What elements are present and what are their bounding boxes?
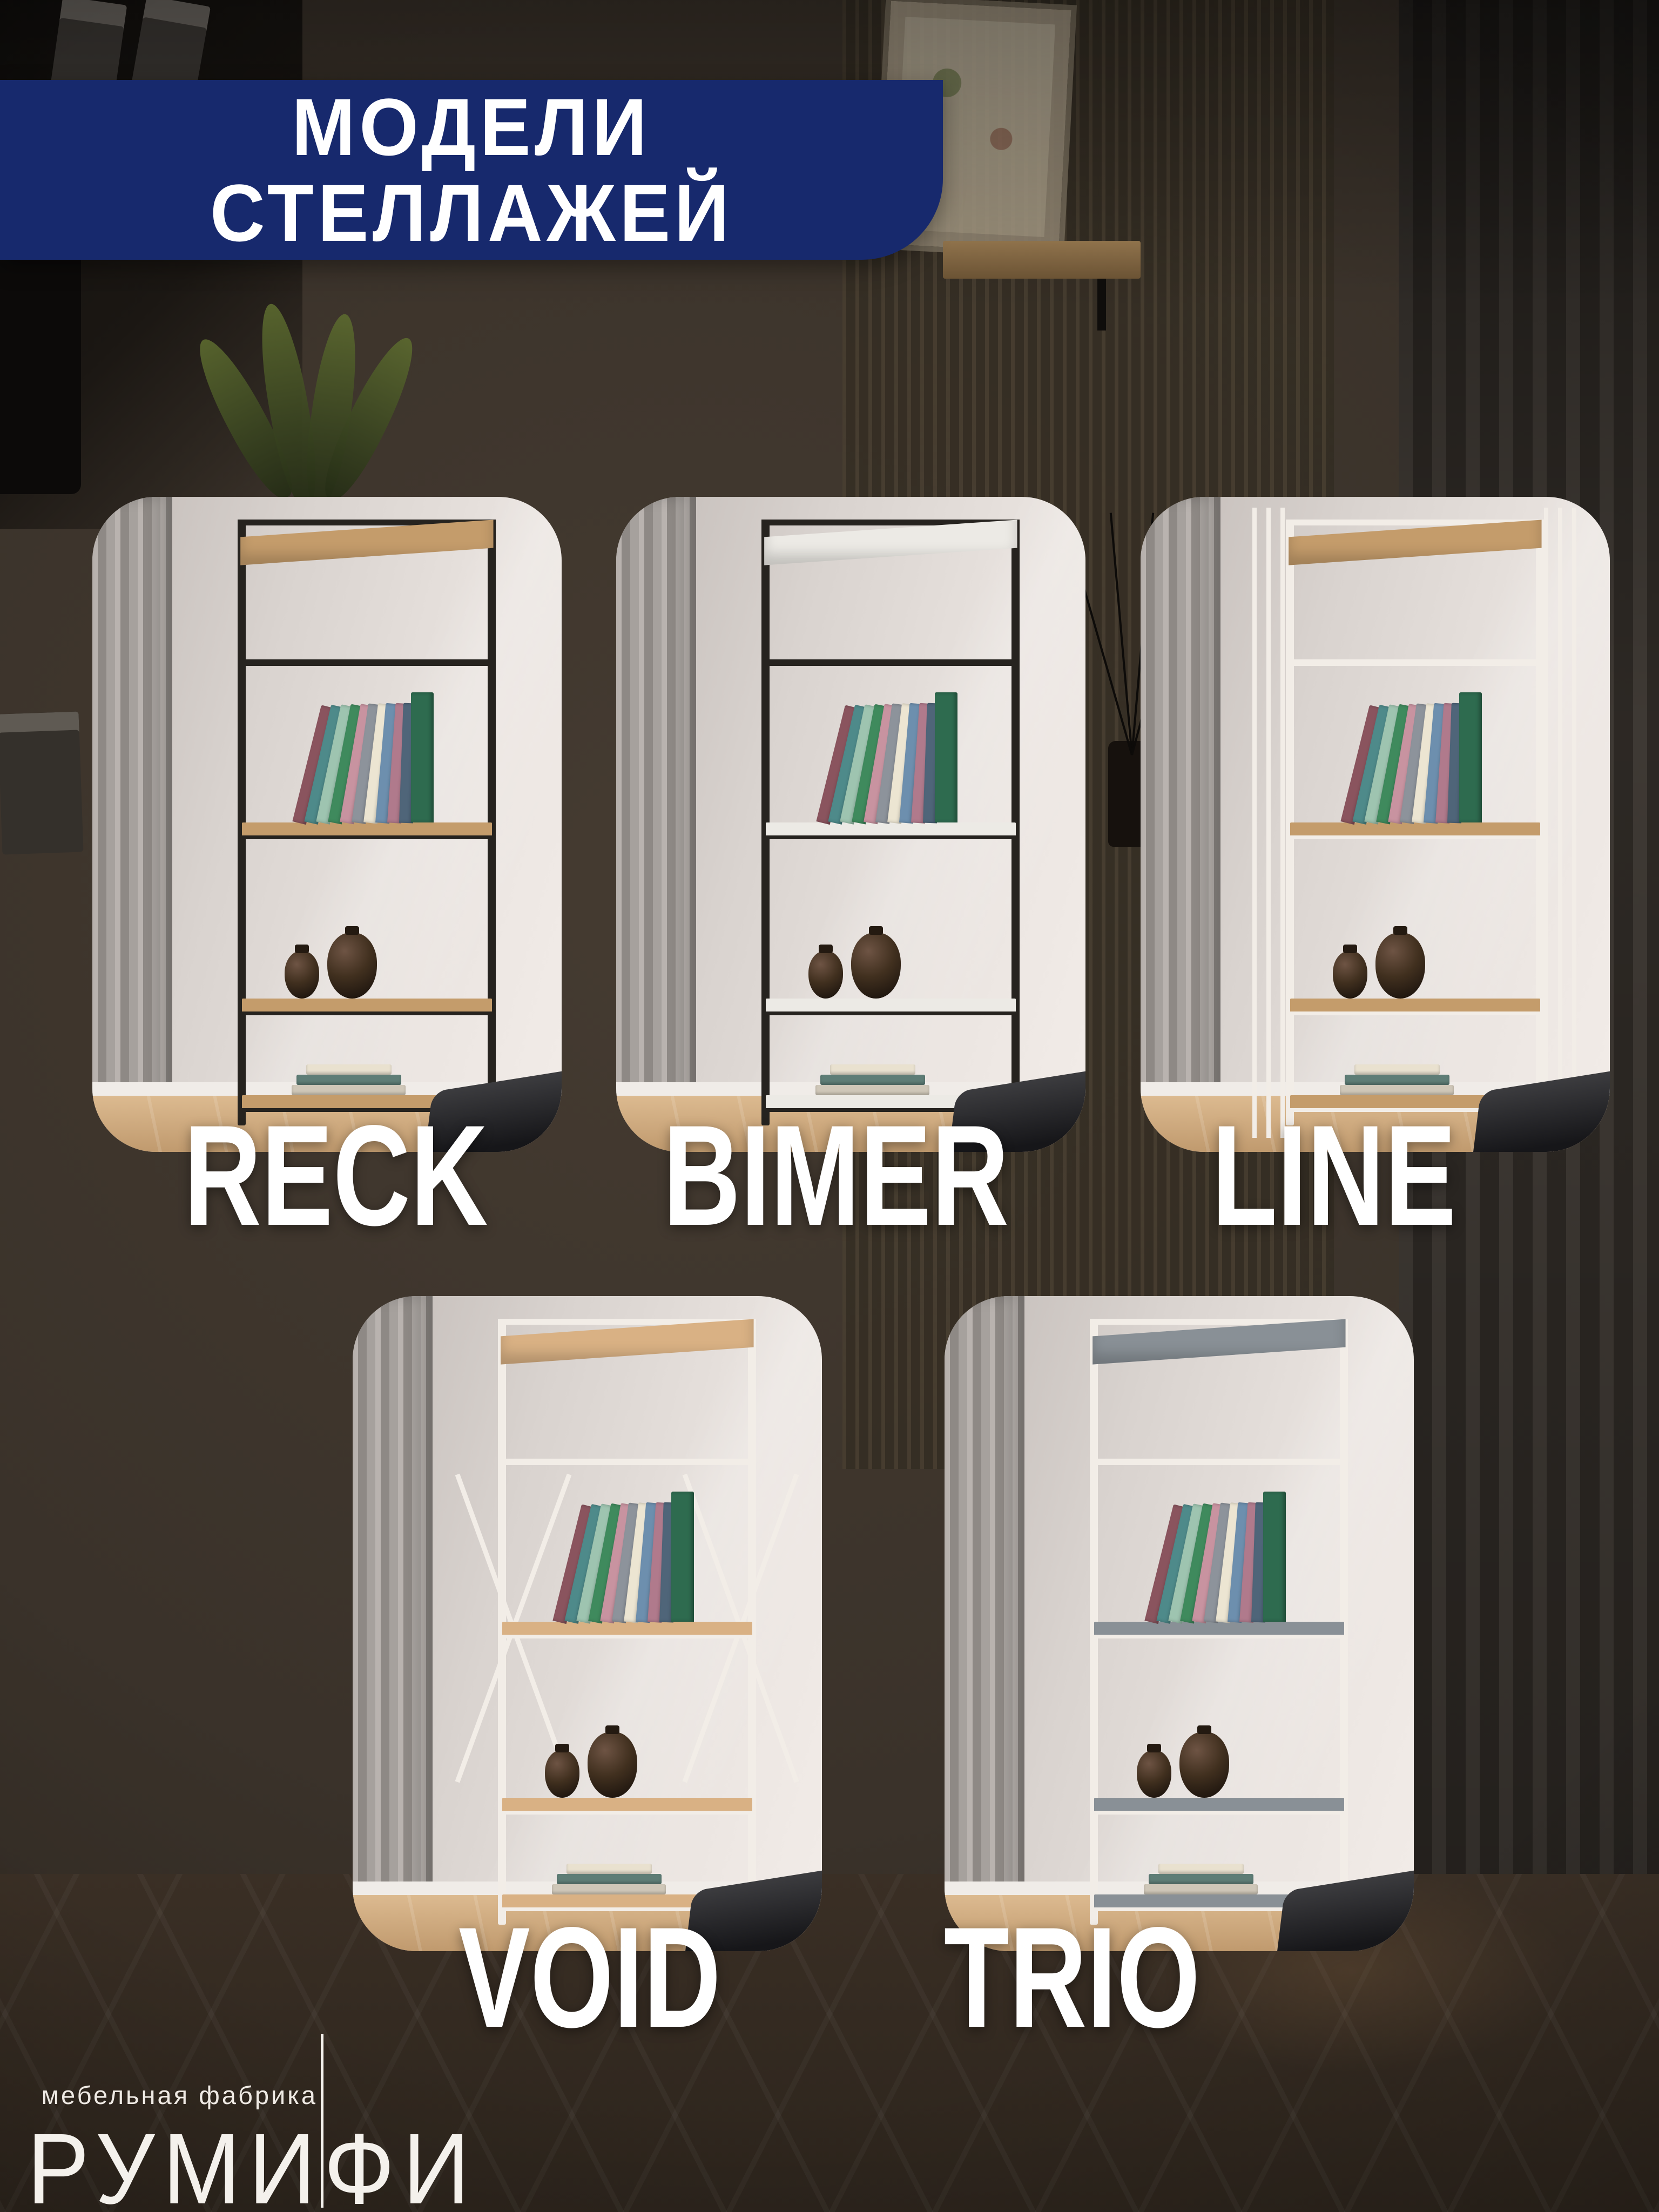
brand-logo: мебельная фабрика РУМИФИ — [0, 2031, 594, 2212]
book-stack — [1142, 1860, 1260, 1894]
plant — [220, 281, 399, 508]
book-stack — [289, 1061, 408, 1095]
card-bimer — [616, 497, 1085, 1152]
card-line — [1141, 497, 1610, 1152]
page-title-line1: МОДЕЛИ — [292, 84, 651, 170]
books — [785, 692, 986, 822]
title-banner: МОДЕЛИ СТЕЛЛАЖЕЙ — [0, 80, 943, 260]
card-trio — [945, 1296, 1414, 1951]
model-label-trio: TRIO — [882, 1906, 1263, 2049]
photo-curtain — [92, 497, 172, 1152]
card-void — [353, 1296, 822, 1951]
model-label-line: LINE — [1144, 1104, 1525, 1247]
photo-curtain — [945, 1296, 1024, 1951]
books — [1309, 692, 1510, 822]
poster: RECK BIMER LINE VOID TRIO МОДЕЛИ СТЕЛЛАЖ… — [0, 0, 1659, 2212]
card-reck — [92, 497, 562, 1152]
shelving-unit-void — [498, 1319, 756, 1925]
brand-name: РУМИФИ — [27, 2112, 478, 2212]
photo-curtain — [353, 1296, 433, 1951]
shelving-unit-trio — [1090, 1319, 1348, 1925]
book-stack — [1338, 1061, 1456, 1095]
books — [261, 692, 462, 822]
photo-curtain — [1141, 497, 1220, 1152]
book-stack — [813, 1061, 932, 1095]
vases — [534, 1746, 648, 1797]
shelving-unit-reck — [238, 520, 496, 1125]
brand-tagline: мебельная фабрика — [0, 2080, 318, 2110]
book-stack — [550, 1860, 669, 1894]
vases — [274, 947, 387, 998]
books — [1113, 1492, 1314, 1622]
vases — [1322, 947, 1435, 998]
shelving-unit-line — [1286, 520, 1544, 1125]
wall-shelf — [943, 241, 1141, 279]
vases — [798, 947, 911, 998]
model-label-void: VOID — [400, 1906, 780, 2049]
vases — [1126, 1746, 1239, 1797]
shelving-unit-bimer — [761, 520, 1020, 1125]
photo-curtain — [616, 497, 696, 1152]
model-label-bimer: BIMER — [646, 1104, 1027, 1247]
page-title-line2: СТЕЛЛАЖЕЙ — [210, 170, 733, 256]
books — [521, 1492, 723, 1622]
model-label-reck: RECK — [146, 1104, 527, 1247]
